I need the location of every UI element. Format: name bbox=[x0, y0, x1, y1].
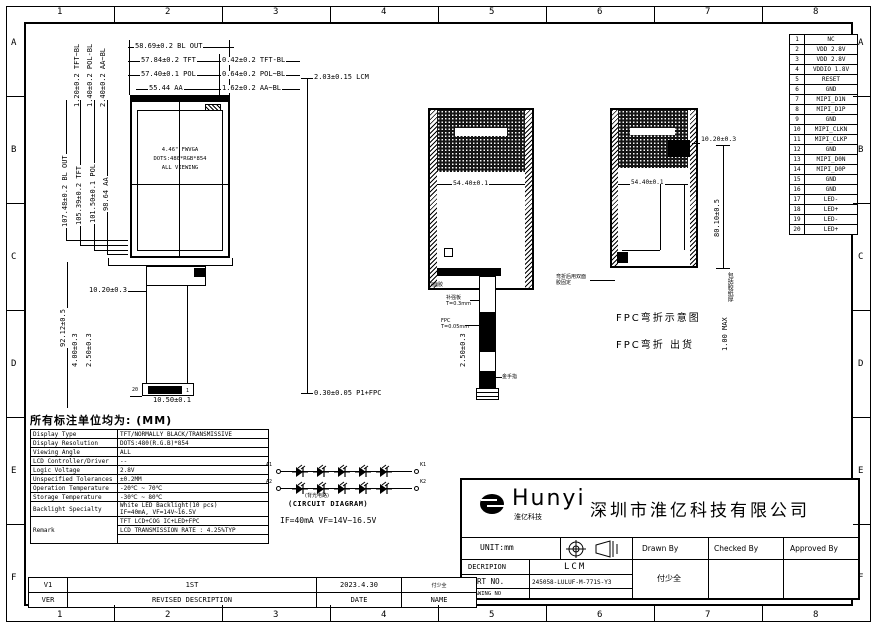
front-view-top-bar bbox=[132, 97, 228, 102]
folded-connector bbox=[617, 252, 628, 263]
grid-ref-row: C bbox=[858, 252, 863, 262]
grid-tick bbox=[853, 417, 871, 418]
logo-subtext: 淮亿科技 bbox=[514, 512, 542, 522]
pin-name: MIPI_D1N bbox=[805, 95, 858, 105]
spec-value: -20℃ ~ 70℃ bbox=[118, 484, 269, 493]
pin-name: GND bbox=[805, 175, 858, 185]
part-no-value: 245058-LULUF-M-771S-Y3 bbox=[532, 579, 611, 586]
pin-name: GND bbox=[805, 115, 858, 125]
dim-bl-out-height: 107.48±0.2 BL OUT bbox=[62, 154, 70, 228]
grid-tick bbox=[114, 6, 115, 23]
pin-row: 17LED- bbox=[790, 195, 858, 205]
fold-line bbox=[660, 184, 661, 250]
pin-number: 14 bbox=[790, 165, 805, 175]
pin-name: NC bbox=[805, 35, 858, 45]
description-value: LCM bbox=[564, 562, 586, 572]
grid-ref-col: 2 bbox=[165, 7, 170, 17]
pin-number: 3 bbox=[790, 55, 805, 65]
grid-ref-row: E bbox=[858, 466, 863, 476]
spec-row: Display ResolutionDOTS:480(R.G.B)*854 bbox=[31, 439, 269, 448]
side-view-line bbox=[307, 78, 308, 393]
pin-number: 2 bbox=[790, 45, 805, 55]
pin-number: 5 bbox=[790, 75, 805, 85]
pin-row: 7MIPI_D1N bbox=[790, 95, 858, 105]
pin-number: 4 bbox=[790, 65, 805, 75]
grid-ref-col: 1 bbox=[57, 7, 62, 17]
revision-header-row: VER REVISED DESCRIPTION DATE NAME bbox=[29, 593, 477, 608]
grid-ref-row: B bbox=[11, 145, 16, 155]
revision-row: V1 1ST 2023.4.30 付少全 bbox=[29, 578, 477, 593]
ext-line bbox=[219, 54, 220, 95]
fold-note: 弯折后用双面胶固定 bbox=[556, 274, 588, 286]
pin-number: 7 bbox=[790, 95, 805, 105]
led-symbol-icon bbox=[334, 480, 350, 499]
spec-value: White LED Backlight(10 pcs) IF=40mA, VF=… bbox=[118, 502, 269, 517]
ext-line bbox=[107, 254, 128, 255]
terminal-a1-label: A1 bbox=[266, 462, 272, 468]
spec-label: Viewing Angle bbox=[31, 448, 118, 457]
grid-ref-col: 4 bbox=[381, 7, 386, 17]
dim-fpc-length: 92.12±0.5 bbox=[60, 308, 68, 348]
stiffener-label: 补强板 T=0.3mm bbox=[446, 295, 471, 307]
leader-line bbox=[465, 325, 479, 326]
pin-row: 18LED+ bbox=[790, 205, 858, 215]
pin-number: 18 bbox=[790, 205, 805, 215]
pin-row: 10MIPI_CLKN bbox=[790, 125, 858, 135]
tb-line bbox=[462, 588, 632, 589]
spec-value: TFT LCD+COG IC+LED+FPC bbox=[118, 517, 269, 526]
grid-ref-row: D bbox=[11, 359, 16, 369]
pin-number: 16 bbox=[790, 185, 805, 195]
spec-label: Display Resolution bbox=[31, 439, 118, 448]
hatch-edge bbox=[430, 110, 437, 288]
pin-name: VDD 2.8V bbox=[805, 45, 858, 55]
pin-number: 1 bbox=[790, 35, 805, 45]
circuit-label-cn: (背光电路) bbox=[305, 493, 329, 499]
spec-value: DOTS:480(R.G.B)*854 bbox=[118, 439, 269, 448]
pin-row: 13MIPI_D0N bbox=[790, 155, 858, 165]
pin-name: VDDIO 1.8V bbox=[805, 65, 858, 75]
grid-tick bbox=[853, 203, 871, 204]
pin-row: 11MIPI_CLKP bbox=[790, 135, 858, 145]
center-line bbox=[179, 95, 180, 258]
spec-table: Display TypeTFT/NORMALLY BLACK/TRANSMISS… bbox=[30, 429, 269, 544]
connector-line bbox=[476, 396, 499, 397]
grid-tick bbox=[438, 605, 439, 622]
tb-line bbox=[783, 537, 784, 598]
pin-name: MIPI_D1P bbox=[805, 105, 858, 115]
led-symbol-icon bbox=[376, 480, 392, 499]
grid-ref-col: 6 bbox=[597, 610, 602, 620]
fpc-bend-ship-note: FPC弯折 出货 bbox=[616, 340, 694, 352]
tb-line bbox=[560, 537, 561, 559]
drawn-by-header: Drawn By bbox=[642, 544, 678, 553]
tb-line bbox=[632, 537, 633, 598]
grid-tick bbox=[546, 6, 547, 23]
tape-thickness-note: 包括胶纸厚 bbox=[726, 272, 733, 302]
tape-area bbox=[437, 110, 525, 172]
dim-lcm-thickness: 2.03±0.15 LCM bbox=[313, 74, 370, 82]
pin-number: 9 bbox=[790, 115, 805, 125]
spec-label: LCD Controller/Driver bbox=[31, 457, 118, 466]
pin-number: 8 bbox=[790, 105, 805, 115]
grid-ref-row: B bbox=[858, 145, 863, 155]
pin-row: 5RESET bbox=[790, 75, 858, 85]
unit-note: 所有标注单位均为: (MM) bbox=[30, 414, 172, 427]
hatch-edge bbox=[690, 110, 696, 266]
dim-tft-bl-vertical: 1.20±0.2 TFT~BL bbox=[74, 43, 82, 108]
tb-line bbox=[708, 537, 709, 598]
rev-name-label: NAME bbox=[402, 593, 477, 608]
spec-row: Backlight SpecialtyWhite LED Backlight(1… bbox=[31, 502, 269, 517]
projection-symbol-icon bbox=[566, 540, 624, 562]
front-view-active-area bbox=[137, 110, 223, 251]
grid-tick bbox=[654, 605, 655, 622]
tb-line bbox=[462, 574, 632, 575]
pin-name: GND bbox=[805, 185, 858, 195]
ext-line bbox=[94, 250, 128, 251]
grid-ref-col: 8 bbox=[813, 610, 818, 620]
spec-value: TFT/NORMALLY BLACK/TRANSMISSIVE bbox=[118, 430, 269, 439]
dim-pol-bl-vertical: 1.40±0.2 POL-BL bbox=[87, 43, 95, 108]
approved-by-header: Approved By bbox=[790, 544, 838, 553]
pin-row: 1NC bbox=[790, 35, 858, 45]
grid-ref-row: F bbox=[11, 573, 16, 583]
circuit-terminal bbox=[414, 486, 419, 491]
fold-line bbox=[684, 184, 685, 250]
back-fpc-connector bbox=[476, 388, 499, 400]
company-name: 深圳市淮亿科技有限公司 bbox=[590, 496, 810, 521]
grid-tick bbox=[6, 96, 24, 97]
spec-row: Viewing AngleALL bbox=[31, 448, 269, 457]
alignment-square bbox=[444, 248, 453, 257]
grid-ref-col: 6 bbox=[597, 7, 602, 17]
pin-number: 12 bbox=[790, 145, 805, 155]
gold-finger-label: 金手指 bbox=[502, 374, 517, 380]
connector-line bbox=[476, 392, 499, 393]
grid-ref-col: 3 bbox=[273, 7, 278, 17]
dim-tft-width: 57.84±0.2 TFT bbox=[140, 57, 197, 65]
dim-folded-top: 10.20±0.3 bbox=[700, 136, 737, 143]
dim-bl-out-width: 58.69±0.2 BL OUT bbox=[134, 43, 203, 51]
rev-ver-label: VER bbox=[29, 593, 68, 608]
dim-pol-bl-gap: 0.64±0.2 POL~BL bbox=[221, 71, 286, 79]
pin-assignment-table: 1NC2VDD 2.8V3VDD 2.8V4VDDIO 1.8V5RESET6G… bbox=[789, 34, 858, 235]
leader-line bbox=[128, 291, 146, 292]
grid-tick bbox=[762, 6, 763, 23]
spec-label: Display Type bbox=[31, 430, 118, 439]
grid-ref-row: F bbox=[858, 573, 863, 583]
ext-line bbox=[129, 40, 130, 95]
pin-number: 10 bbox=[790, 125, 805, 135]
fpc-stiffener-segment bbox=[479, 371, 496, 388]
dim-pol-width: 57.40±0.1 POL bbox=[140, 71, 197, 79]
pin-row: 8MIPI_D1P bbox=[790, 105, 858, 115]
pin-name: LED- bbox=[805, 195, 858, 205]
unit-label: UNIT:mm bbox=[480, 543, 514, 552]
spec-row: Display TypeTFT/NORMALLY BLACK/TRANSMISS… bbox=[31, 430, 269, 439]
leader-line bbox=[470, 300, 479, 301]
pin-row: 14MIPI_D0P bbox=[790, 165, 858, 175]
fpc-strip bbox=[146, 285, 188, 385]
hatch-edge bbox=[525, 110, 532, 288]
pin-name: LED- bbox=[805, 215, 858, 225]
drawn-by-signature: 付少全 bbox=[657, 573, 681, 584]
drawing-sheet: 4.46" FWVGA DOTS:480*RGB*854 ALL VIEWING… bbox=[0, 0, 877, 628]
spec-label: Storage Temperature bbox=[31, 493, 118, 502]
tb-line bbox=[529, 559, 530, 598]
pin20-mark: 20 bbox=[132, 387, 138, 393]
backlight-circuit bbox=[268, 455, 433, 501]
spec-row: Operation Temperature-20℃ ~ 70℃ bbox=[31, 484, 269, 493]
leader-line bbox=[130, 396, 142, 397]
circuit-terminal bbox=[414, 469, 419, 474]
grid-tick bbox=[6, 524, 24, 525]
pin-name: MIPI_D0P bbox=[805, 165, 858, 175]
pin-number: 11 bbox=[790, 135, 805, 145]
dim-connector-h1: 4.00±0.3 bbox=[72, 332, 80, 368]
leader-line bbox=[496, 377, 502, 378]
grid-tick bbox=[114, 605, 115, 622]
spec-value: -30℃ ~ 80℃ bbox=[118, 493, 269, 502]
tape-label: 双面胶 bbox=[428, 282, 443, 288]
pin-row: 9GND bbox=[790, 115, 858, 125]
grid-tick bbox=[853, 524, 871, 525]
spec-label: Logic Voltage bbox=[31, 466, 118, 475]
grid-tick bbox=[438, 6, 439, 23]
spec-row: Logic Voltage2.8V bbox=[31, 466, 269, 475]
dim-connector-width: 10.50±0.1 bbox=[152, 397, 192, 405]
tb-line bbox=[462, 559, 858, 560]
pin-name: MIPI_CLKN bbox=[805, 125, 858, 135]
fpc-component bbox=[194, 268, 205, 277]
spec-value: ALL bbox=[118, 448, 269, 457]
ledge-line bbox=[108, 258, 109, 266]
grid-tick bbox=[6, 203, 24, 204]
pin-row: 16GND bbox=[790, 185, 858, 195]
ledge-line bbox=[232, 258, 233, 266]
grid-tick bbox=[762, 605, 763, 622]
dim-folded-height: 80.10±0.5 bbox=[714, 198, 722, 238]
dim-fpc-top: 10.20±0.3 bbox=[88, 287, 128, 295]
terminal-k2-label: K2 bbox=[420, 479, 426, 485]
grid-ref-row: C bbox=[11, 252, 16, 262]
pin-name: GND bbox=[805, 145, 858, 155]
backlight-electrical-spec: IF=40mA VF=14V~16.5V bbox=[280, 516, 376, 526]
spec-value: 2.8V bbox=[118, 466, 269, 475]
grid-ref-row: D bbox=[858, 359, 863, 369]
grid-tick bbox=[853, 310, 871, 311]
terminal-a2-label: A2 bbox=[266, 479, 272, 485]
max-thickness-note: 1.00 MAX bbox=[722, 316, 730, 352]
grid-ref-row: A bbox=[858, 38, 863, 48]
pin-row: 6GND bbox=[790, 85, 858, 95]
grid-tick bbox=[654, 6, 655, 23]
revision-table: V1 1ST 2023.4.30 付少全 VER REVISED DESCRIP… bbox=[28, 577, 477, 608]
spec-row: RemarkTFT LCD+COG IC+LED+FPC bbox=[31, 517, 269, 526]
spec-value: -- bbox=[118, 457, 269, 466]
pin-name: MIPI_D0N bbox=[805, 155, 858, 165]
hunyi-logo-icon bbox=[478, 492, 508, 520]
fpc-thickness-label: FPC T=0.05mm bbox=[441, 318, 469, 330]
logo-text: Hunyi bbox=[512, 486, 586, 511]
spec-value: LCD TRANSMISSION RATE : 4.25%TYP bbox=[118, 526, 269, 535]
grid-ref-col: 4 bbox=[381, 610, 386, 620]
circuit-label-en: (CIRCUIT DIAGRAM) bbox=[288, 500, 368, 508]
ext-line bbox=[80, 245, 128, 246]
spec-label: Backlight Specialty bbox=[31, 502, 118, 517]
pin-name: VDD 2.8V bbox=[805, 55, 858, 65]
grid-tick bbox=[330, 605, 331, 622]
rev-name-value: 付少全 bbox=[402, 578, 477, 593]
grid-ref-row: E bbox=[11, 466, 16, 476]
dim-tft-height: 105.39±0.2 TFT bbox=[76, 165, 84, 226]
rev-desc-value: 1ST bbox=[68, 578, 317, 593]
checked-by-header: Checked By bbox=[714, 544, 758, 553]
grid-ref-col: 2 bbox=[165, 610, 170, 620]
spec-row: LCD Controller/Driver-- bbox=[31, 457, 269, 466]
pin-number: 19 bbox=[790, 215, 805, 225]
tape-area bbox=[618, 110, 688, 168]
led-symbol-icon bbox=[355, 480, 371, 499]
pin-name: LED+ bbox=[805, 225, 858, 235]
screen-dots-label: DOTS:480*RGB*854 bbox=[138, 155, 222, 164]
dim-aa-bl-vertical: 2.40±0.2 AA~BL bbox=[100, 47, 108, 108]
pin-number: 20 bbox=[790, 225, 805, 235]
grid-ref-col: 7 bbox=[705, 7, 710, 17]
dim-aa-bl-gap: 1.62±0.2 AA~BL bbox=[221, 85, 282, 93]
dim-connector-h2: 2.50±0.3 bbox=[86, 332, 94, 368]
fpc-stiffener-segment bbox=[479, 312, 496, 352]
dim-line bbox=[723, 145, 724, 268]
folded-fpc-block bbox=[668, 140, 690, 157]
screen-size-label: 4.46" FWVGA bbox=[138, 146, 222, 155]
grid-tick bbox=[222, 6, 223, 23]
pin-name: RESET bbox=[805, 75, 858, 85]
spec-label: Remark bbox=[31, 517, 118, 544]
leader-line bbox=[692, 143, 700, 144]
dim-aa-width: 55.44 AA bbox=[148, 85, 184, 93]
description-label: DECRIPION bbox=[468, 563, 506, 571]
grid-ref-col: 3 bbox=[273, 610, 278, 620]
grid-tick bbox=[330, 6, 331, 23]
title-block: Hunyi 淮亿科技 深圳市淮亿科技有限公司 UNIT:mm Drawn By … bbox=[460, 478, 860, 600]
screen-viewing-label: ALL VIEWING bbox=[138, 164, 222, 173]
grid-ref-col: 7 bbox=[705, 610, 710, 620]
pin-row: 3VDD 2.8V bbox=[790, 55, 858, 65]
pin-row: 12GND bbox=[790, 145, 858, 155]
circuit-terminal bbox=[276, 469, 281, 474]
pin-row: 4VDDIO 1.8V bbox=[790, 65, 858, 75]
dim-pol-height: 101.50±0.1 POL bbox=[90, 163, 98, 224]
pin-row: 19LED- bbox=[790, 215, 858, 225]
spec-value: ±0.2MM bbox=[118, 475, 269, 484]
pin-name: LED+ bbox=[805, 205, 858, 215]
pin-number: 17 bbox=[790, 195, 805, 205]
fpc-connector-contacts bbox=[148, 386, 182, 394]
grid-ref-row: A bbox=[11, 38, 16, 48]
grid-tick bbox=[853, 96, 871, 97]
fpc-bend-diagram-title: FPC弯折示意图 bbox=[616, 313, 701, 325]
dim-tft-bl-gap: 0.42±0.2 TFT-BL bbox=[221, 57, 286, 65]
dim-fpc-thickness: 0.30±0.05 P1+FPC bbox=[313, 390, 382, 398]
rev-date-value: 2023.4.30 bbox=[317, 578, 402, 593]
spec-row: Storage Temperature-30℃ ~ 80℃ bbox=[31, 493, 269, 502]
circuit-terminal bbox=[276, 486, 281, 491]
grid-tick bbox=[6, 417, 24, 418]
spec-label: Operation Temperature bbox=[31, 484, 118, 493]
pin-name: GND bbox=[805, 85, 858, 95]
tape-label-strip bbox=[630, 128, 675, 135]
grid-ref-col: 8 bbox=[813, 7, 818, 17]
leader-line bbox=[590, 280, 615, 281]
fpc-top-bar bbox=[437, 268, 501, 276]
spec-value bbox=[118, 535, 269, 544]
grid-tick bbox=[222, 605, 223, 622]
grid-ref-col: 5 bbox=[489, 610, 494, 620]
pin-number: 15 bbox=[790, 175, 805, 185]
ext-line bbox=[66, 240, 128, 241]
center-line bbox=[130, 184, 230, 185]
dim-tape-width: 54.40±0.1 bbox=[452, 180, 489, 187]
spec-label: Unspecified Tolerances bbox=[31, 475, 118, 484]
grid-ref-col: 5 bbox=[489, 7, 494, 17]
grid-tick bbox=[6, 310, 24, 311]
dim-tick bbox=[716, 268, 730, 269]
pin-row: 2VDD 2.8V bbox=[790, 45, 858, 55]
dim-fold-height: 2.50±0.3 bbox=[460, 332, 468, 368]
pin-row: 15GND bbox=[790, 175, 858, 185]
dim-tick bbox=[716, 145, 730, 146]
pin-number: 6 bbox=[790, 85, 805, 95]
rev-ver-value: V1 bbox=[29, 578, 68, 593]
grid-tick bbox=[546, 605, 547, 622]
tape-label-strip bbox=[455, 128, 507, 136]
pin-name: MIPI_CLKP bbox=[805, 135, 858, 145]
pin-row: 20LED+ bbox=[790, 225, 858, 235]
rev-desc-label: REVISED DESCRIPTION bbox=[68, 593, 317, 608]
pin1-mark: 1 bbox=[186, 388, 189, 394]
pin-number: 13 bbox=[790, 155, 805, 165]
spec-row: Unspecified Tolerances±0.2MM bbox=[31, 475, 269, 484]
screen-spec-text: 4.46" FWVGA DOTS:480*RGB*854 ALL VIEWING bbox=[138, 146, 222, 173]
fold-line bbox=[622, 250, 660, 251]
tb-line bbox=[462, 537, 858, 538]
grid-ref-col: 1 bbox=[57, 610, 62, 620]
terminal-k1-label: K1 bbox=[420, 462, 426, 468]
dim-aa-height: 98.64 AA bbox=[103, 176, 111, 212]
